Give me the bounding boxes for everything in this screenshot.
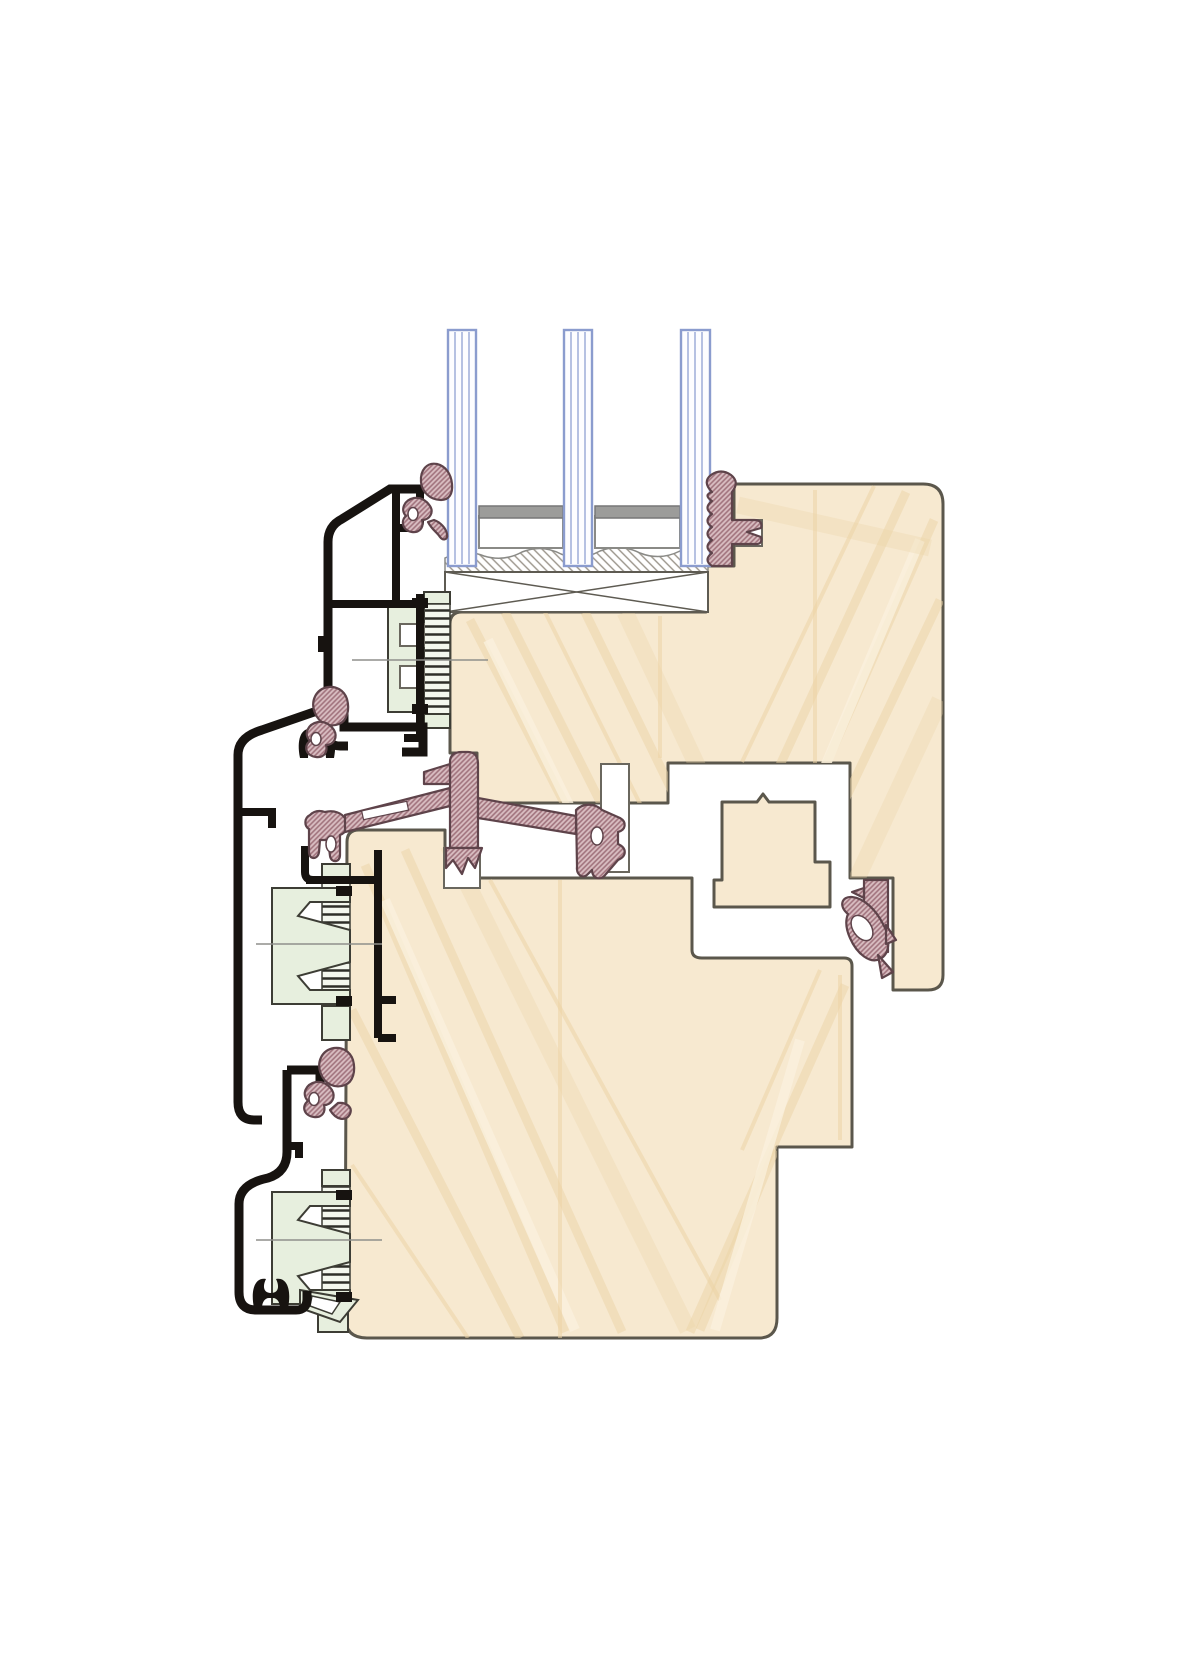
spacer-body-2	[595, 516, 680, 548]
clip-hook-icon	[336, 886, 352, 896]
exterior-top-gasket	[403, 464, 452, 540]
tongue-block	[714, 794, 830, 907]
spacer-body-1	[479, 516, 563, 548]
glass-pane-outer	[448, 330, 476, 566]
triple-glazing-unit	[445, 330, 710, 612]
ribbed-connector-top	[424, 604, 450, 714]
glass-pane-inner	[681, 330, 710, 566]
clip-hook-icon	[336, 1292, 352, 1302]
glass-pane-middle	[564, 330, 592, 566]
glazing-clip-middle	[272, 864, 352, 1040]
window-cross-section-canvas	[0, 0, 1200, 1680]
window-cross-section-diagram	[0, 0, 1200, 1680]
bottom-frame-gasket	[304, 1048, 354, 1119]
clip-hook-icon	[336, 996, 352, 1006]
spacer-bar-1	[479, 506, 563, 518]
spacer-bar-2	[595, 506, 680, 518]
clip-hook-icon	[336, 1190, 352, 1200]
